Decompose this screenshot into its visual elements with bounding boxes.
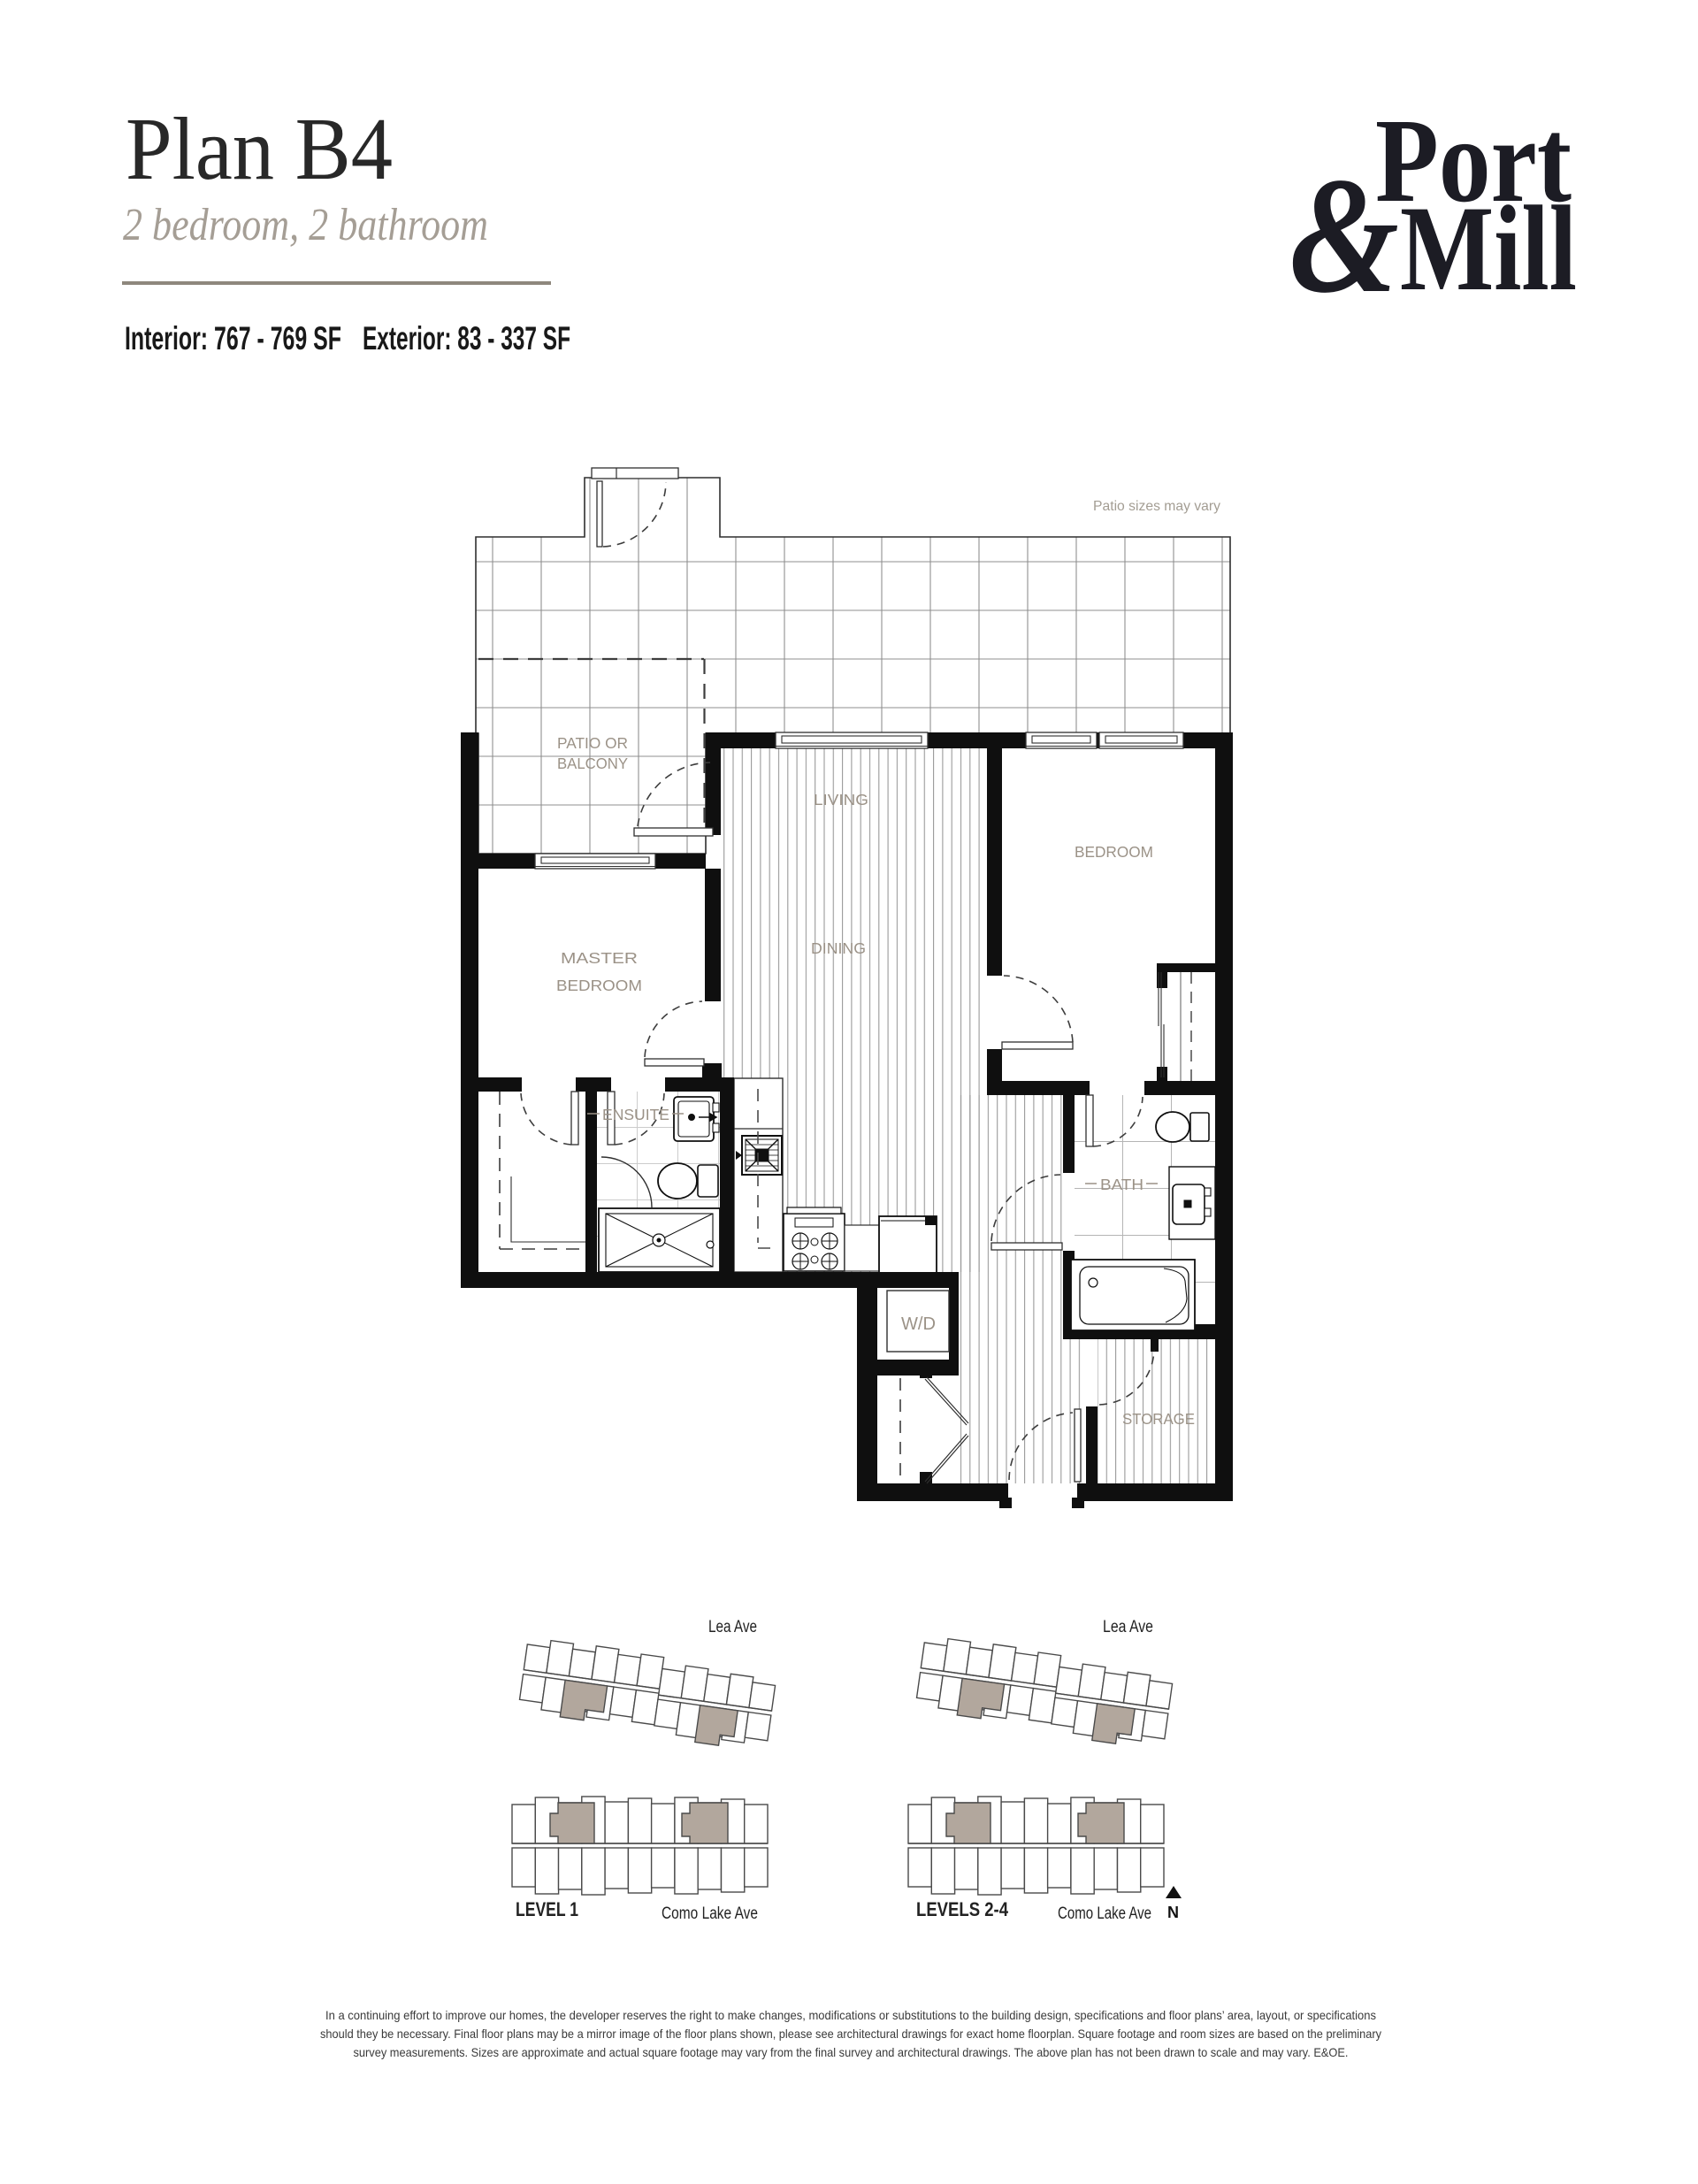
svg-text:Patio sizes may vary: Patio sizes may vary: [1093, 499, 1220, 514]
svg-text:2 bedroom, 2 bathroom: 2 bedroom, 2 bathroom: [123, 200, 488, 250]
svg-text:Como Lake Ave: Como Lake Ave: [1058, 1904, 1151, 1923]
svg-text:LIVING: LIVING: [814, 791, 868, 808]
svg-text:LEVELS 2-4: LEVELS 2-4: [916, 1898, 1009, 1920]
svg-text:W/D: W/D: [901, 1314, 936, 1334]
svg-text:In a continuing effort to impr: In a continuing effort to improve our ho…: [325, 2008, 1376, 2022]
svg-text:Lea Ave: Lea Ave: [708, 1618, 757, 1636]
svg-text:should they be necessary. Fina: should they be necessary. Final floor pl…: [320, 2027, 1381, 2041]
svg-text:DINING: DINING: [811, 939, 866, 957]
svg-text:STORAGE: STORAGE: [1122, 1410, 1195, 1428]
svg-text:Lea Ave: Lea Ave: [1103, 1618, 1153, 1636]
svg-text:Como Lake Ave: Como Lake Ave: [662, 1904, 758, 1923]
svg-text:ENSUITE: ENSUITE: [602, 1106, 669, 1123]
svg-text:BEDROOM: BEDROOM: [1075, 843, 1153, 861]
svg-text:survey measurements. Sizes are: survey measurements. Sizes are approxima…: [354, 2045, 1349, 2059]
svg-text:BEDROOM: BEDROOM: [556, 977, 642, 994]
svg-text:&: &: [1289, 142, 1399, 327]
svg-text:LEVEL 1: LEVEL 1: [516, 1898, 578, 1920]
svg-text:Mill: Mill: [1400, 180, 1577, 316]
svg-text:PATIO OR: PATIO OR: [557, 734, 628, 752]
svg-text:Exterior: 83 - 337 SF: Exterior: 83 - 337 SF: [363, 320, 570, 356]
svg-text:Plan B4: Plan B4: [126, 99, 393, 198]
svg-text:Interior: 767 - 769 SF: Interior: 767 - 769 SF: [125, 320, 341, 356]
svg-text:N: N: [1167, 1904, 1179, 1921]
svg-text:BALCONY: BALCONY: [557, 755, 628, 772]
svg-text:MASTER: MASTER: [561, 949, 638, 967]
svg-text:BATH: BATH: [1100, 1176, 1143, 1193]
